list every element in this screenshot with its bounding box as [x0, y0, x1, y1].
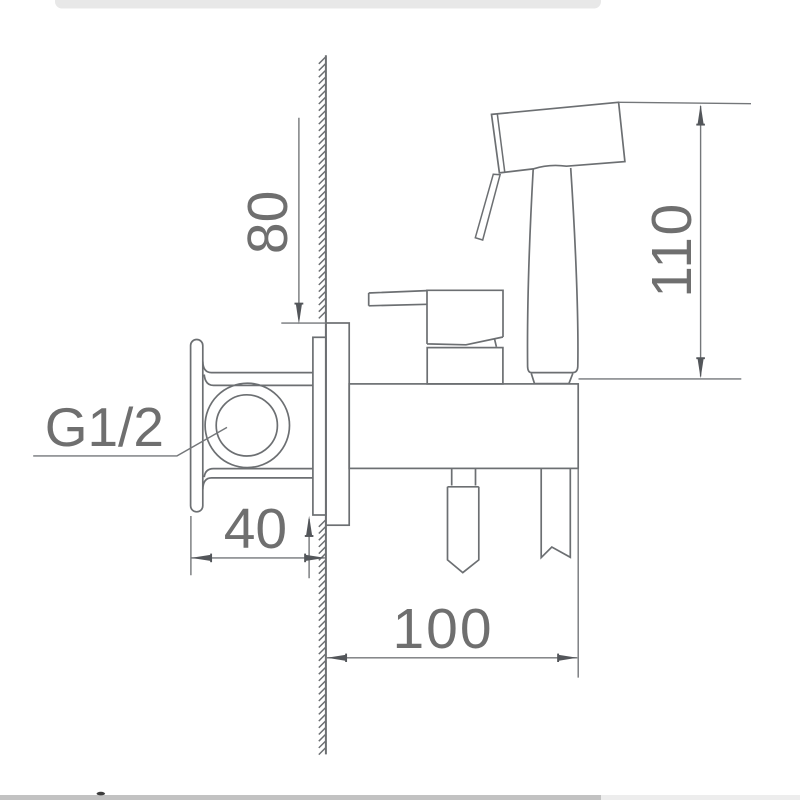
svg-text:80: 80 [236, 191, 300, 254]
svg-text:40: 40 [224, 497, 287, 561]
svg-text:110: 110 [640, 202, 704, 297]
svg-text:G1/2: G1/2 [45, 396, 164, 458]
svg-text:100: 100 [392, 597, 493, 661]
